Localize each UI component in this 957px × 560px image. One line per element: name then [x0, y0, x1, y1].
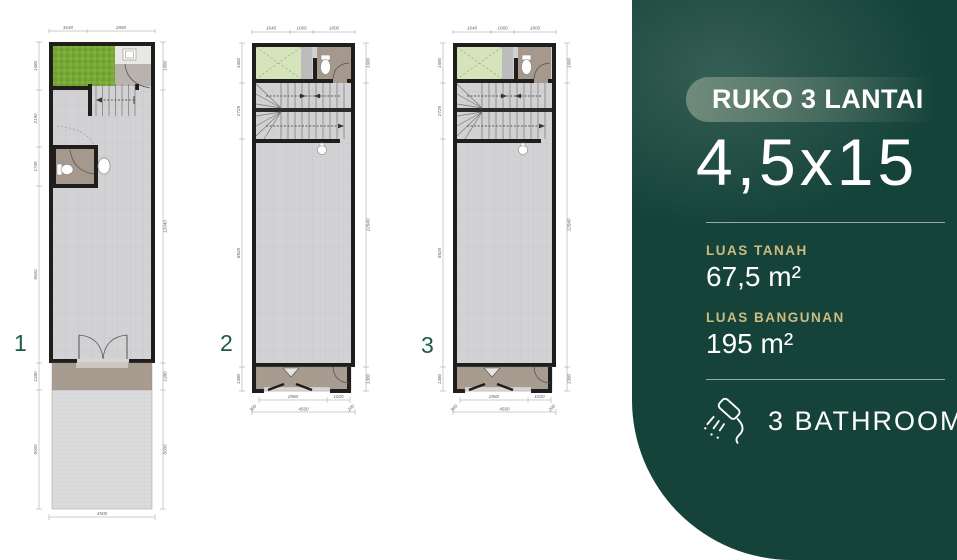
dim-label: 2980: [488, 394, 500, 399]
title-badge-label: RUKO 3 LANTAI: [712, 84, 924, 114]
dim-label: 1640: [63, 25, 74, 30]
dim-label: 4500: [97, 511, 108, 516]
dim-label: 1680: [163, 60, 168, 71]
building-area-label: LUAS BANGUNAN: [706, 310, 845, 325]
plan3-balcony: [453, 367, 552, 393]
dim-label: 300: [248, 403, 257, 412]
plan2-bathroom: [317, 47, 351, 79]
dim-label: 8535: [437, 247, 442, 258]
floor-plan-2: 1640 1060 1800 1680 2725 8535 1380 1680 …: [236, 26, 371, 416]
plan3-bathroom: [518, 47, 551, 79]
dim-label: 8600: [33, 269, 38, 280]
dim-label: 1680: [366, 57, 371, 68]
land-area-label: LUAS TANAH: [706, 243, 808, 258]
dim-label: 1735: [33, 161, 38, 172]
title-badge: RUKO 3 LANTAI: [686, 77, 957, 122]
floor-plan-3: 1640 1060 1800 1680 2725 8535 1380 1680 …: [437, 26, 572, 416]
info-panel: RUKO 3 LANTAI 4,5x15 LUAS TANAH 67,5 m² …: [632, 0, 957, 560]
plan3-number: 3: [421, 332, 434, 359]
dim-label: 1640: [266, 26, 277, 31]
dim-label: 4500: [298, 407, 309, 412]
sink-icon: [98, 158, 110, 174]
dim-label: 1680: [567, 57, 572, 68]
dim-label: 4500: [499, 407, 510, 412]
poster: { "panel": { "badge": "RUKO 3 LANTAI", "…: [0, 0, 957, 537]
bathroom-count-label: 3 BATHROOM: [768, 406, 957, 437]
dim-label: 1060: [296, 26, 307, 31]
dim-label: 2725: [437, 105, 442, 117]
dim-label: 1380: [366, 373, 371, 384]
dim-label: 1800: [530, 26, 541, 31]
shower-icon: [698, 397, 750, 445]
dim-label: 1020: [333, 394, 344, 399]
dim-label: 1380: [437, 373, 442, 384]
dim-label: 1380: [567, 373, 572, 384]
dim-label: 5000: [33, 444, 38, 455]
dim-label: 12940: [567, 218, 572, 231]
plan2-number: 2: [220, 330, 233, 357]
dim-label: 1680: [236, 57, 241, 68]
dim-label: 200: [346, 403, 356, 413]
bathroom-row: 3 BATHROOM: [698, 396, 957, 446]
dim-label: 1800: [329, 26, 340, 31]
plan1-carport: [52, 390, 152, 509]
dim-label: 1060: [497, 26, 508, 31]
dim-label: 1280: [33, 371, 38, 382]
building-area-value: 195 m²: [706, 328, 793, 360]
dim-label: 8535: [236, 247, 241, 258]
dim-label: 1680: [437, 57, 442, 68]
size-text: 4,5x15: [696, 124, 918, 200]
plan1-number: 1: [14, 330, 27, 357]
dim-label: 2860: [115, 25, 127, 30]
plan2-balcony: [252, 367, 351, 393]
dim-label: 1020: [534, 394, 545, 399]
plan1-garden: [53, 46, 115, 86]
plan1-sink: [123, 49, 136, 60]
divider-bottom: [706, 379, 945, 380]
land-area-value: 67,5 m²: [706, 261, 801, 293]
floor-plans-canvas: 1640 2860 1680 2150 1735 8600 1280 5000 …: [0, 0, 640, 537]
dim-label: 2150: [33, 113, 38, 125]
sink-icon: [519, 146, 528, 155]
dim-label: 12040: [163, 220, 168, 233]
dim-label: 1280: [163, 371, 168, 382]
floor-plan-1: 1640 2860 1680 2150 1735 8600 1280 5000 …: [33, 25, 168, 520]
dim-label: 300: [449, 403, 458, 412]
dim-label: 1680: [33, 60, 38, 71]
dim-label: 2725: [236, 105, 241, 117]
dim-label: 200: [547, 403, 557, 413]
dim-label: 1640: [467, 26, 478, 31]
dim-label: 5000: [163, 444, 168, 455]
dim-label: 1380: [236, 373, 241, 384]
sink-icon: [318, 146, 327, 155]
divider-top: [706, 222, 945, 223]
plan1-landing: [115, 64, 151, 86]
dim-label: 2980: [287, 394, 299, 399]
dim-label: 12940: [366, 218, 371, 231]
plan1-floor: [53, 46, 151, 359]
